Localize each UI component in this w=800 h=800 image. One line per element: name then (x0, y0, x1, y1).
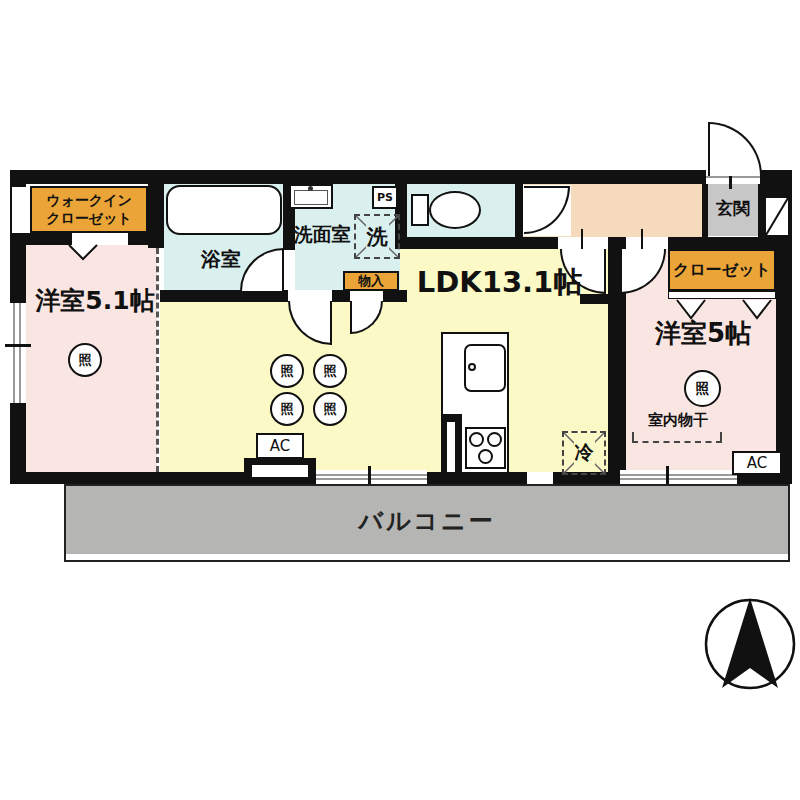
wall-bottom-a (10, 472, 245, 484)
window-line (620, 474, 737, 476)
ac-unit-ldk: AC (256, 433, 304, 459)
closet-front (668, 291, 776, 299)
ldk-door-opening (558, 237, 608, 249)
window-tick (5, 344, 31, 347)
window-line (620, 478, 737, 480)
storage-label: 物入 (358, 272, 384, 290)
light-label: 照 (696, 380, 710, 398)
light-label: 照 (79, 351, 92, 369)
light-symbol: 照 (313, 354, 347, 388)
entrance-step-diagonal (766, 198, 788, 235)
ac-bedroom-label: AC (747, 454, 767, 472)
window-line (13, 303, 15, 403)
light-label: 照 (281, 362, 294, 380)
toilet-tank (411, 194, 429, 226)
kitchen-faucet (468, 363, 476, 371)
threshold-line (706, 176, 760, 178)
entrance-step (766, 198, 788, 235)
refrigerator-box: 冷 (562, 431, 606, 475)
window-line (316, 474, 427, 476)
sliding-window-ldk (316, 470, 427, 484)
indoor-drying-rail (632, 432, 722, 443)
walk-in-closet-label-line1: ウォークイン (46, 192, 132, 210)
sliding-window-bedroom-right (620, 470, 737, 484)
bathtub (166, 185, 282, 235)
window-frame-glass (252, 465, 308, 477)
washbasin-bowl (294, 190, 328, 205)
closet-label-box: クローゼット (668, 249, 776, 291)
light-symbol: 照 (270, 392, 304, 426)
ldk-label: LDK13.1帖 (402, 264, 597, 300)
balcony: バルコニー (64, 484, 790, 562)
kitchen-wall-slit (447, 422, 455, 472)
washroom-label: 洗面室 (286, 222, 358, 246)
ac-unit-bedroom-right: AC (732, 451, 782, 475)
bathroom-door-opening (284, 250, 295, 290)
indoor-drying-label: 室内物干 (630, 409, 726, 431)
pipe-space-box: PS (372, 186, 398, 209)
window-line (19, 303, 21, 403)
floor-plan: ウォークイン クローゼット PS 洗 物入 冷 AC AC クローゼット (0, 0, 800, 800)
storage-box: 物入 (343, 271, 399, 291)
wic-wall-niche (12, 187, 26, 233)
washbasin-faucet (308, 186, 313, 191)
light-label: 照 (324, 400, 337, 418)
toilet-bowl (429, 191, 481, 229)
wall-toilet-hall (515, 184, 523, 237)
pipe-space-label: PS (377, 191, 393, 204)
window-line (316, 478, 427, 480)
ldk-floor-main (160, 302, 610, 472)
folding-door-icon (68, 244, 98, 261)
stove-burner (487, 432, 502, 447)
light-label: 照 (324, 362, 337, 380)
light-label: 照 (281, 400, 294, 418)
bathroom-label: 浴室 (189, 246, 253, 272)
balcony-label: バルコニー (332, 504, 522, 538)
washing-machine-box: 洗 (354, 214, 400, 259)
wall-hall-entrance (702, 184, 708, 237)
ac-ldk-label: AC (270, 437, 290, 455)
entrance-door (708, 122, 762, 176)
washing-machine-label: 洗 (366, 223, 389, 251)
walk-in-closet-label-box: ウォークイン クローゼット (30, 186, 148, 233)
light-symbol: 照 (684, 370, 721, 407)
stove-burner (469, 432, 484, 447)
sliding-partition-bedroom-left (156, 248, 162, 472)
closet-label: クローゼット (673, 260, 771, 281)
north-arrow-icon (700, 596, 800, 696)
bedroom-left-label: 洋室5.1帖 (20, 284, 170, 318)
bedroom-right-label: 洋室5帖 (634, 316, 772, 352)
refrigerator-label: 冷 (574, 440, 595, 466)
light-symbol: 照 (68, 343, 102, 377)
light-symbol: 照 (270, 354, 304, 388)
walk-in-closet-label-line2: クローゼット (46, 210, 132, 228)
light-symbol: 照 (313, 392, 347, 426)
stove-burner (478, 449, 493, 464)
entrance-label: 玄関 (709, 196, 757, 220)
